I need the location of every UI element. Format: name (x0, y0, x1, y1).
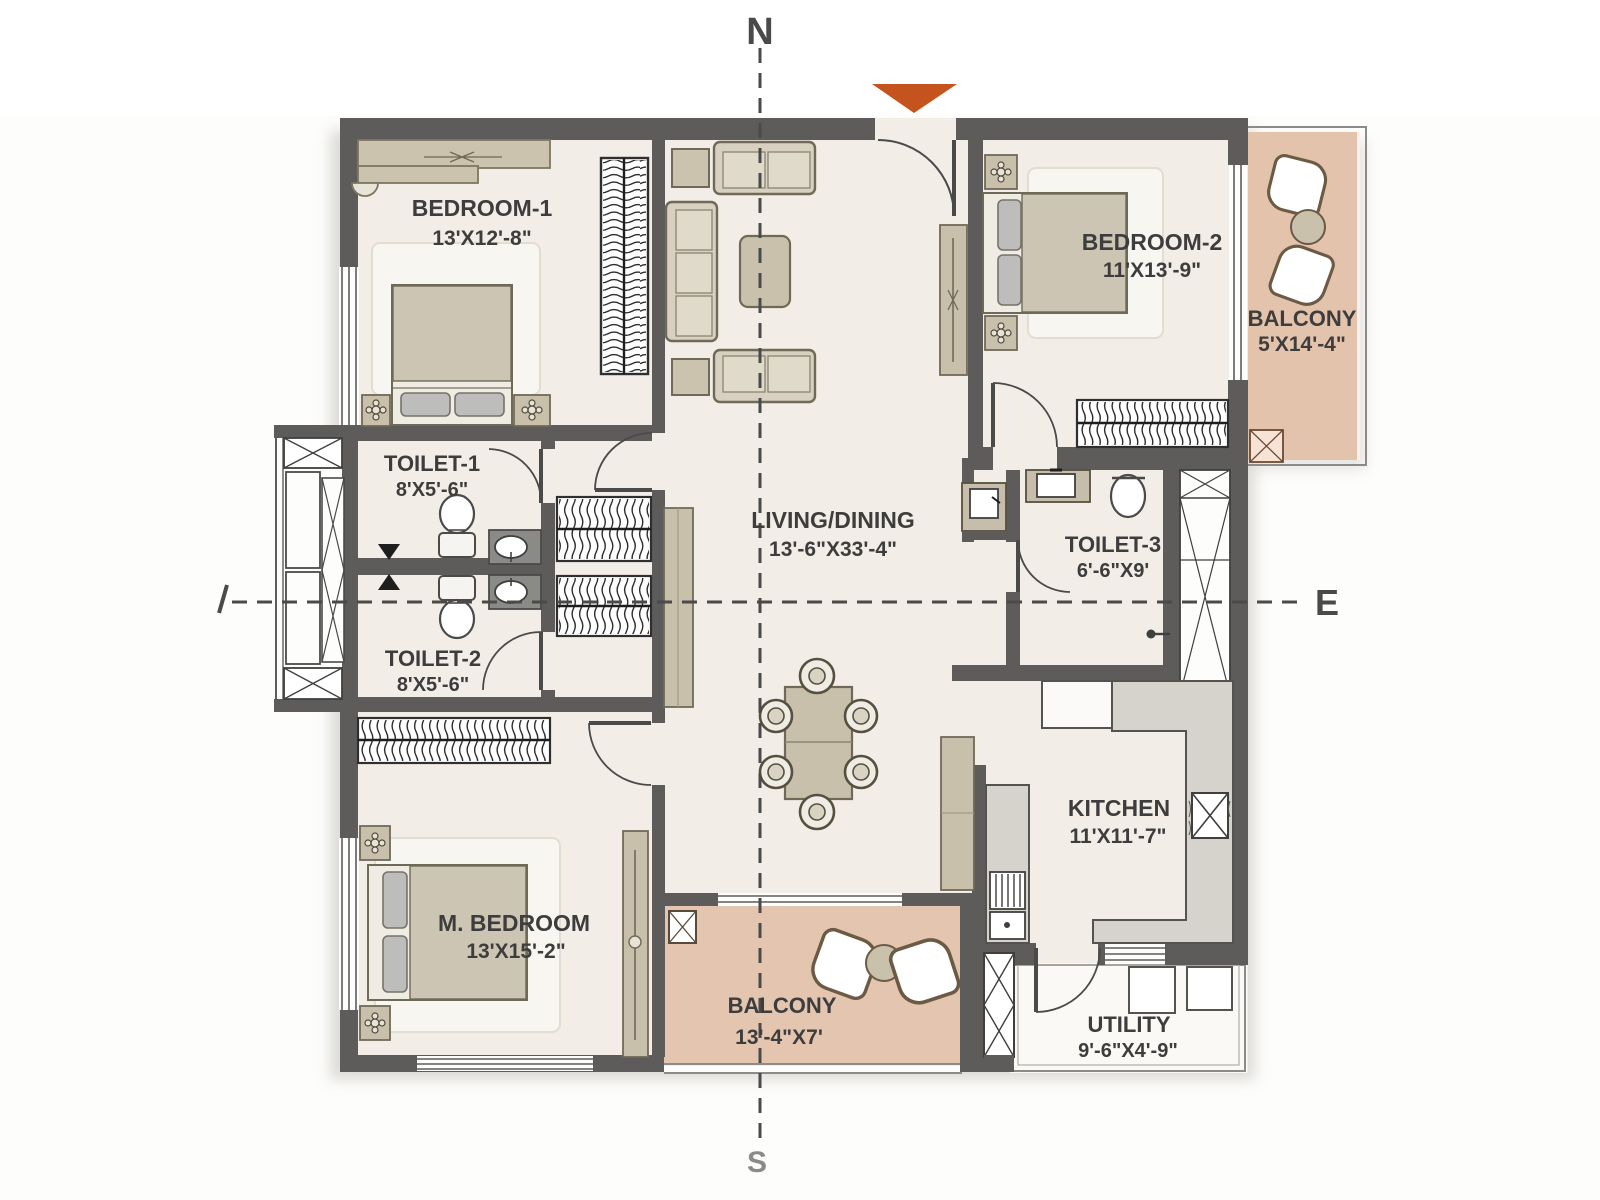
svg-text:13'X12'-8": 13'X12'-8" (432, 227, 531, 250)
svg-text:13'-6"X33'-4": 13'-6"X33'-4" (769, 538, 897, 561)
svg-text:TOILET-1: TOILET-1 (384, 451, 480, 476)
svg-text:E: E (1315, 582, 1339, 623)
svg-text:TOILET-3: TOILET-3 (1065, 532, 1161, 557)
svg-text:13'X15'-2": 13'X15'-2" (466, 940, 565, 963)
svg-text:8'X5'-6": 8'X5'-6" (396, 479, 468, 501)
svg-text:S: S (747, 1146, 767, 1179)
svg-text:KITCHEN: KITCHEN (1068, 795, 1170, 821)
svg-text:11'X11'-7": 11'X11'-7" (1069, 825, 1166, 848)
svg-text:UTILITY: UTILITY (1087, 1012, 1170, 1037)
svg-text:M. BEDROOM: M. BEDROOM (438, 910, 590, 936)
svg-text:11'X13'-9": 11'X13'-9" (1103, 259, 1201, 282)
svg-text:BEDROOM-1: BEDROOM-1 (412, 195, 553, 221)
svg-text:LIVING/DINING: LIVING/DINING (751, 507, 915, 533)
svg-text:N: N (746, 11, 773, 53)
svg-text:BALCONY: BALCONY (1248, 306, 1357, 331)
svg-text:5'X14'-4": 5'X14'-4" (1258, 333, 1346, 356)
svg-text:TOILET-2: TOILET-2 (385, 646, 481, 671)
svg-text:BALCONY: BALCONY (728, 993, 837, 1018)
svg-text:6'-6"X9': 6'-6"X9' (1077, 560, 1149, 582)
svg-text:13'-4"X7': 13'-4"X7' (735, 1026, 823, 1049)
svg-text:8'X5'-6": 8'X5'-6" (397, 674, 469, 696)
svg-text:9'-6"X4'-9": 9'-6"X4'-9" (1078, 1040, 1178, 1062)
svg-text:BEDROOM-2: BEDROOM-2 (1082, 229, 1223, 255)
